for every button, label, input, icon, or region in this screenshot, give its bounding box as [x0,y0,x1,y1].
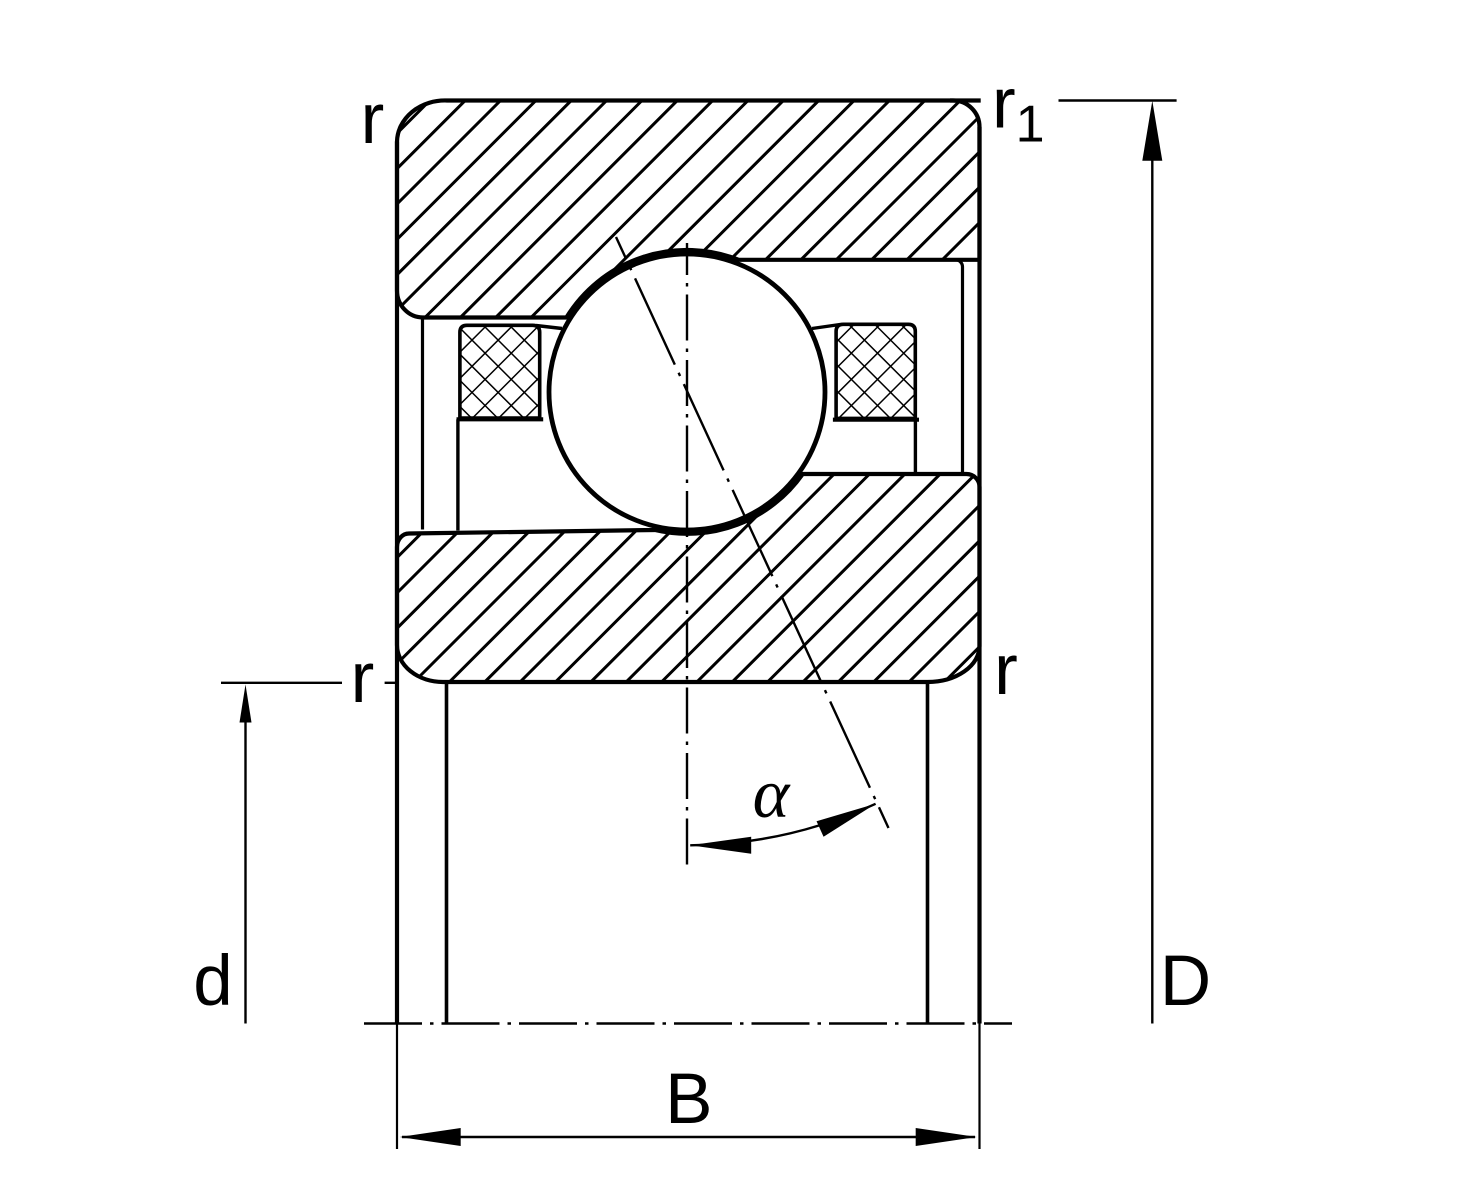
svg-text:B: B [665,1060,712,1139]
svg-text:d: d [193,942,233,1021]
svg-text:D: D [1160,942,1211,1021]
svg-text:α: α [753,756,791,833]
svg-text:r1: r1 [992,65,1045,154]
svg-text:r: r [361,80,385,159]
svg-text:r: r [994,631,1018,710]
svg-text:r: r [351,639,375,718]
